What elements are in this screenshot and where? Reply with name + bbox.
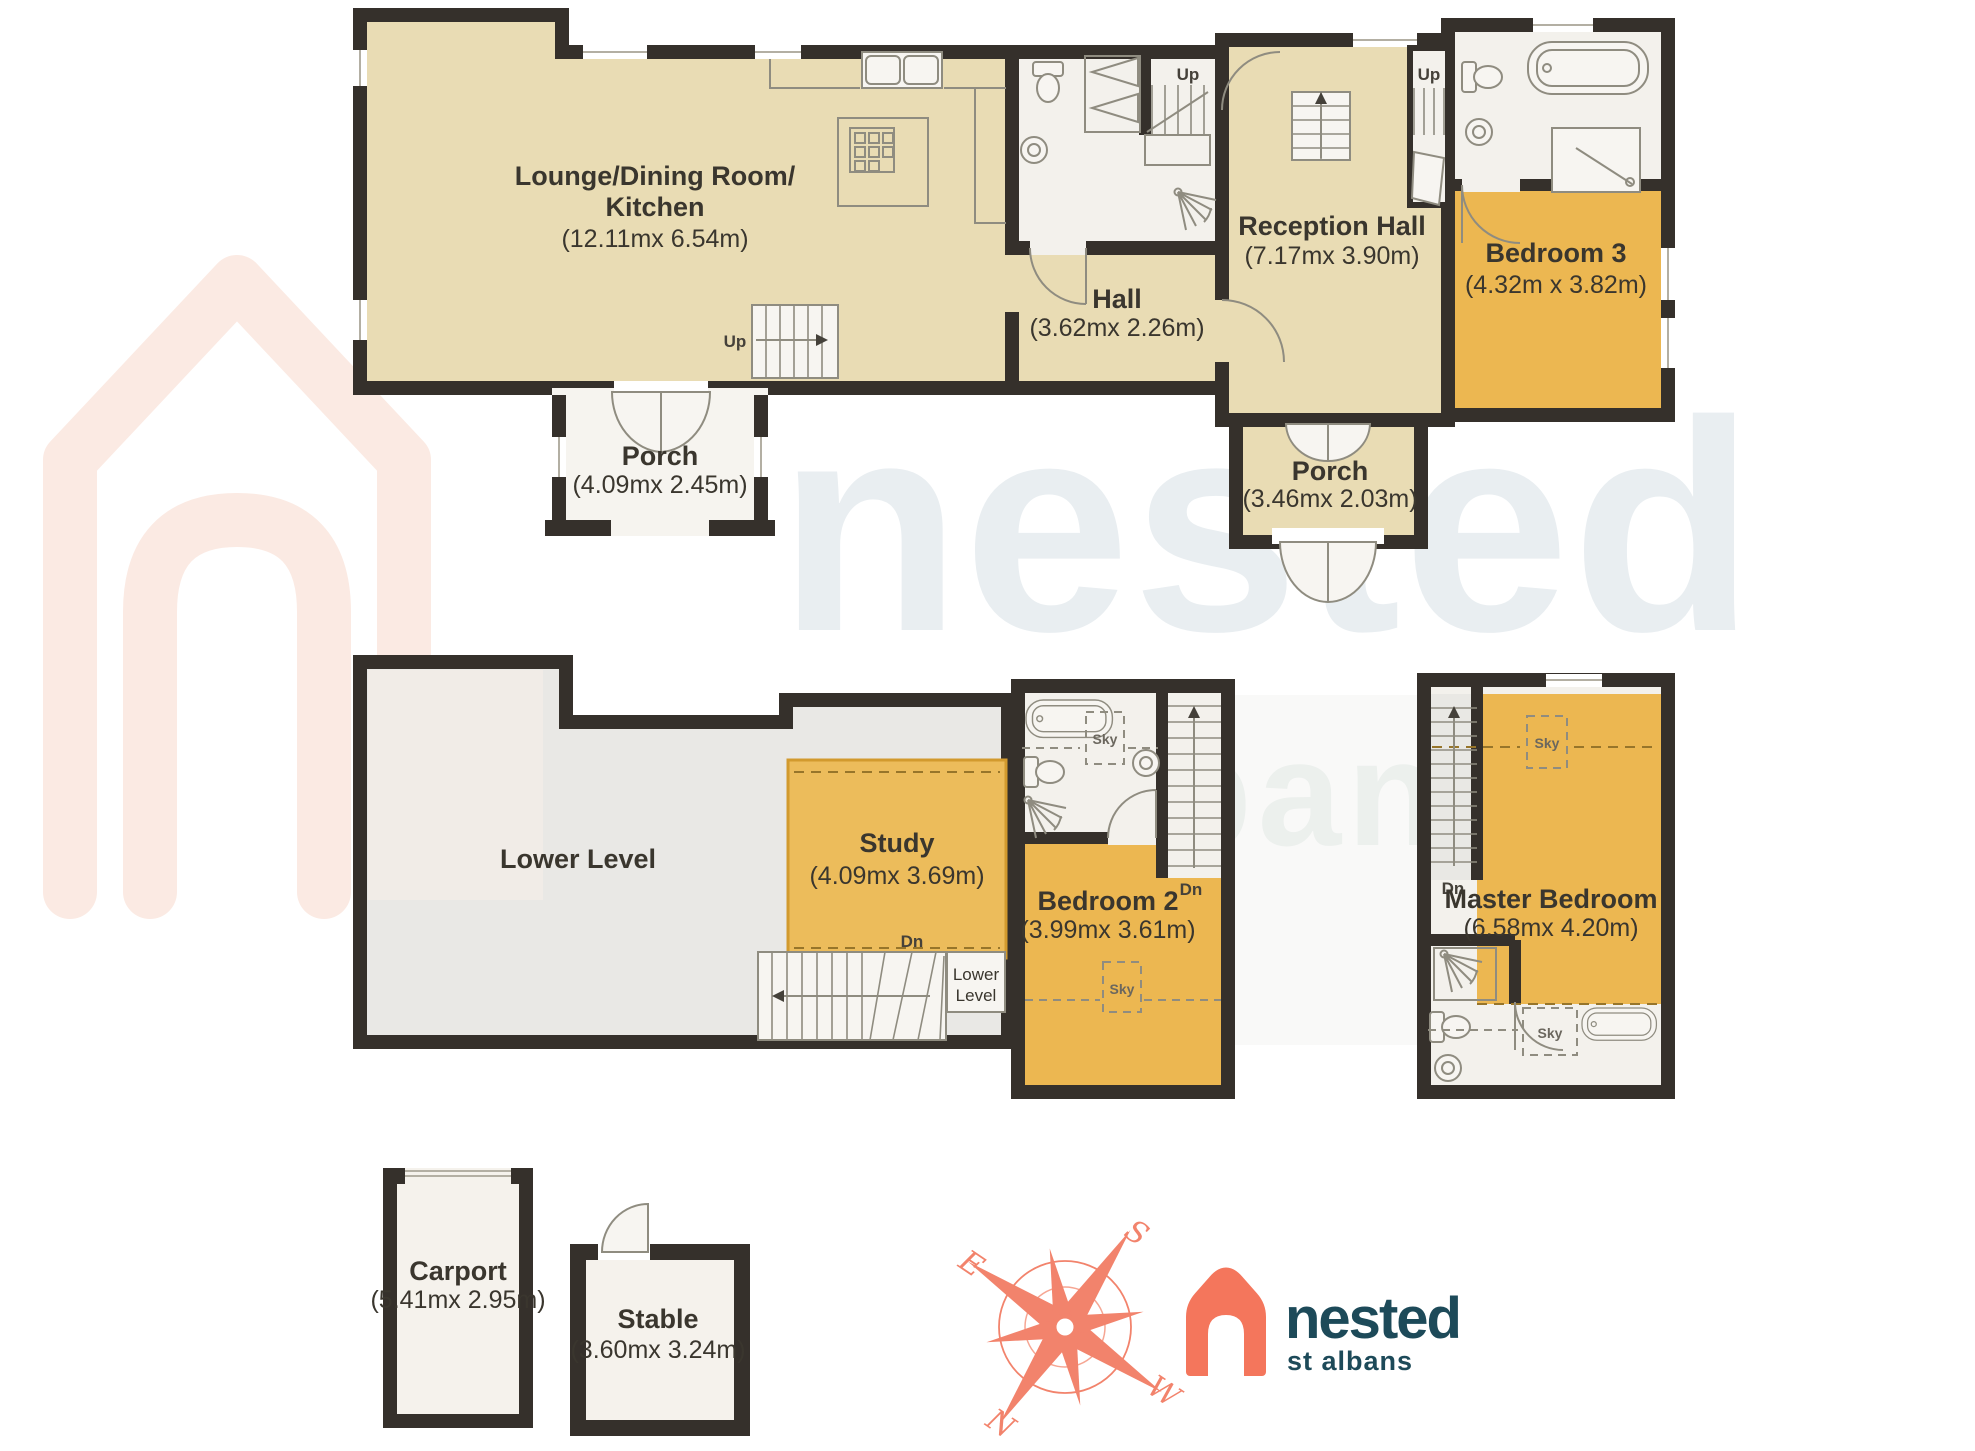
stairs-down-label: Dn bbox=[1180, 880, 1203, 899]
study-dims: (4.09mx 3.69m) bbox=[809, 862, 984, 890]
door-opening bbox=[1462, 178, 1520, 192]
stable-dims: (3.60mx 3.24m) bbox=[570, 1336, 745, 1364]
stairs-up-label: Up bbox=[1418, 65, 1441, 84]
porch-rear-dims: (3.46mx 2.03m) bbox=[1242, 485, 1417, 513]
lower-level-small-label2: Level bbox=[956, 986, 997, 1005]
carport-dims: (5.41mx 2.95m) bbox=[370, 1286, 545, 1314]
sink-icon bbox=[1133, 750, 1159, 776]
logo-brand-text: nested bbox=[1285, 1286, 1460, 1351]
skylight-label: Sky bbox=[1538, 1025, 1563, 1041]
master-bedroom-block: Sky Dn Sky bbox=[1424, 674, 1668, 1092]
door-arc bbox=[602, 1204, 648, 1252]
carport-label: Carport bbox=[409, 1256, 507, 1286]
shower-tray-icon bbox=[1552, 128, 1640, 192]
stairs-reception bbox=[1292, 92, 1350, 160]
compass-west-label: W bbox=[1141, 1369, 1188, 1416]
compass-north-label: N bbox=[979, 1402, 1023, 1447]
bedroom-3-label: Bedroom 3 bbox=[1485, 238, 1626, 268]
reception-hall-dims: (7.17mx 3.90m) bbox=[1244, 242, 1419, 270]
bathtub-icon bbox=[1528, 42, 1648, 94]
room-study bbox=[788, 760, 1006, 958]
door-leaf bbox=[1412, 152, 1444, 205]
sink-icon bbox=[1021, 137, 1047, 163]
outbuildings: Carport (5.41mx 2.95m) Stable (3.60mx 3.… bbox=[370, 1168, 745, 1428]
nested-logo: nested st albans bbox=[1190, 1272, 1460, 1377]
room-master-bedroom bbox=[1477, 694, 1661, 1004]
lower-level-label: Lower Level bbox=[500, 844, 656, 874]
first-floor-plan: Dn Lower Level Sky bbox=[360, 662, 1668, 1092]
stable-label: Stable bbox=[617, 1304, 698, 1334]
carport: Carport (5.41mx 2.95m) bbox=[370, 1168, 545, 1428]
sink-icon bbox=[1466, 119, 1492, 145]
lower-level-small-label: Lower bbox=[953, 965, 1000, 984]
bathtub-icon bbox=[1582, 1008, 1656, 1040]
logo-location-text: st albans bbox=[1287, 1346, 1413, 1376]
bedroom-2-label: Bedroom 2 bbox=[1037, 886, 1178, 916]
reception-hall-label: Reception Hall bbox=[1238, 211, 1426, 241]
door-opening bbox=[1108, 831, 1156, 845]
stable: Stable (3.60mx 3.24m) bbox=[570, 1204, 745, 1428]
sink-icon bbox=[1435, 1055, 1461, 1081]
landing-strip bbox=[1232, 695, 1420, 1045]
hall-label: Hall bbox=[1092, 284, 1142, 314]
stairs-down-label: Dn bbox=[901, 932, 924, 951]
door-opening bbox=[1215, 300, 1229, 362]
floorplan-page: nested st albans bbox=[0, 0, 1975, 1451]
door-opening bbox=[1030, 241, 1086, 255]
porch-front-dims: (4.09mx 2.45m) bbox=[572, 471, 747, 499]
skylight-label: Sky bbox=[1093, 731, 1118, 747]
door-opening bbox=[1005, 255, 1019, 312]
watermark-house-arch-icon bbox=[150, 520, 324, 892]
stairs-right-nook: Up bbox=[1410, 48, 1448, 205]
bedroom-3-dims: (4.32m x 3.82m) bbox=[1465, 271, 1647, 299]
lounge-label: Lounge/Dining Room/ bbox=[515, 161, 796, 191]
kitchen-sink-icon bbox=[862, 52, 942, 88]
lounge-label-line2: Kitchen bbox=[605, 192, 704, 222]
compass-rose: S E N W bbox=[903, 1165, 1228, 1451]
bedroom-2-dims: (3.99mx 3.61m) bbox=[1020, 916, 1195, 944]
hall-dims: (3.62mx 2.26m) bbox=[1029, 314, 1204, 342]
lounge-dims: (12.11mx 6.54m) bbox=[561, 225, 748, 253]
porch-rear-label: Porch bbox=[1292, 456, 1369, 486]
master-bedroom-dims: (6.58mx 4.20m) bbox=[1463, 914, 1638, 942]
compass-east-label: E bbox=[952, 1243, 991, 1285]
stairs-up-label: Up bbox=[724, 332, 747, 351]
master-bedroom-label: Master Bedroom bbox=[1444, 884, 1657, 914]
porch-front-label: Porch bbox=[622, 441, 699, 471]
logo-house-arch-icon bbox=[1208, 1315, 1244, 1376]
skylight-label: Sky bbox=[1535, 735, 1560, 751]
skylight-label: Sky bbox=[1110, 981, 1135, 997]
study-label: Study bbox=[859, 828, 934, 858]
compass-south-label: S bbox=[1118, 1213, 1155, 1254]
stairs-up-label: Up bbox=[1177, 65, 1200, 84]
